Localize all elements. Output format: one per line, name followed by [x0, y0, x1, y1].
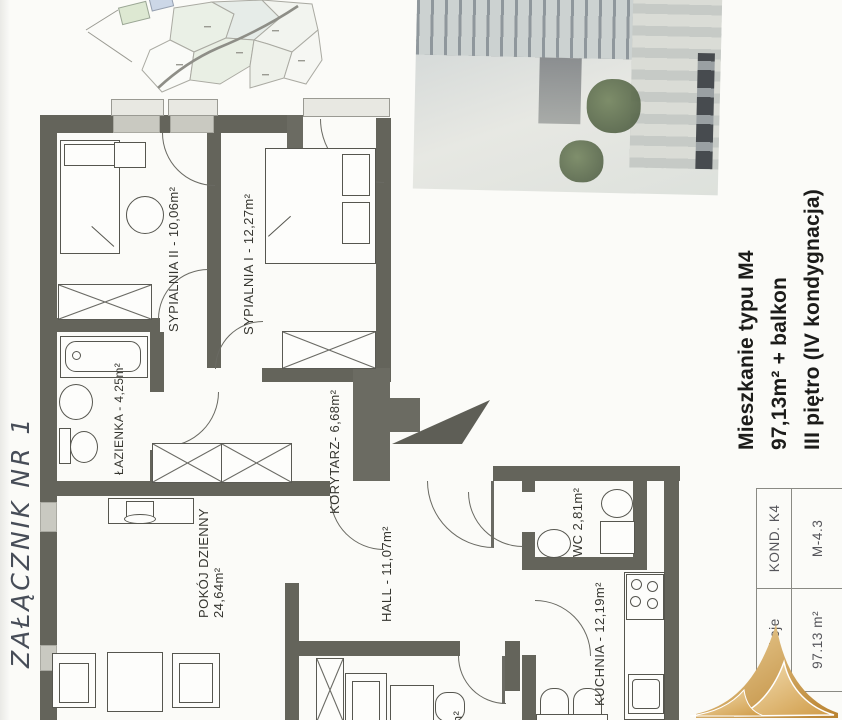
- wall: [40, 481, 330, 496]
- wall: [522, 481, 535, 492]
- sofa-seat: [352, 681, 380, 720]
- door-leaf: [502, 656, 505, 704]
- wardrobe: [152, 443, 223, 483]
- room-label-wc: WC 2,81m²: [570, 488, 585, 557]
- wall: [664, 466, 679, 720]
- wall: [40, 115, 57, 720]
- balcony-slab: [111, 99, 164, 116]
- wardrobe: [221, 443, 292, 483]
- wall: [160, 115, 170, 133]
- bathroom-sink: [59, 384, 93, 420]
- door-arc: [458, 656, 506, 704]
- apartment-area: 97,13m² + balkon: [768, 277, 791, 450]
- desk: [390, 685, 434, 720]
- wall: [285, 583, 299, 720]
- wall: [40, 115, 113, 133]
- pillow: [342, 154, 370, 196]
- wall: [214, 115, 287, 133]
- balcony-door-threshold: [170, 115, 214, 133]
- wall: [522, 557, 647, 570]
- room-label-sypialnia-2: SYPIALNIA II - 10,06m²: [166, 187, 181, 332]
- room-label-pokoj-dzienny: POKÓJ DZIENNY 24,64m²: [196, 508, 226, 618]
- window: [113, 115, 160, 133]
- location-map: [66, 0, 324, 94]
- handwritten-annotation: ZAŁĄCZNIK NR 1: [6, 416, 35, 668]
- scanned-floor-plan-page: ZAŁĄCZNIK NR 1: [0, 0, 842, 720]
- room-label-pokoj-3: 16m²: [450, 711, 465, 720]
- coffee-table: [107, 652, 163, 712]
- pillow: [342, 202, 370, 244]
- door-arc: [164, 392, 219, 447]
- tv-base: [124, 514, 156, 524]
- stove-burner: [647, 581, 658, 592]
- table-cell-unit: M-4.3: [792, 489, 842, 589]
- armchair-seat: [179, 663, 213, 703]
- toilet-tank: [600, 521, 635, 554]
- wall: [353, 368, 390, 481]
- table-cell-kond: KOND. K4: [757, 489, 792, 589]
- kitchen-table: [536, 714, 608, 720]
- pillow: [64, 144, 116, 166]
- wall: [522, 655, 536, 720]
- room-label-korytarz: KORYTARZ- 6,68m²: [327, 390, 342, 514]
- wc-sink: [537, 529, 571, 558]
- toilet: [601, 489, 633, 518]
- photo-tree: [559, 140, 604, 183]
- apartment-info-block: Mieszkanie typu M4 97,13m² + balkon III …: [730, 189, 829, 450]
- wardrobe: [58, 284, 152, 320]
- entrance-arrow: [390, 394, 495, 446]
- stove-burner: [631, 579, 642, 590]
- wall: [493, 466, 680, 481]
- wall: [299, 641, 460, 656]
- stove-burner: [630, 596, 641, 607]
- wardrobe: [316, 658, 344, 720]
- chair: [126, 196, 164, 234]
- bathtub-drain: [72, 351, 81, 360]
- room-label-hall: HALL - 11,07m²: [379, 526, 394, 622]
- door-arc: [535, 600, 591, 656]
- apartment-type: Mieszkanie typu M4: [735, 250, 758, 450]
- room-label-kuchnia: KUCHNIA - 12,19m²: [592, 582, 607, 706]
- photo-parked-cars: [695, 53, 715, 169]
- desk: [114, 142, 146, 168]
- photo-entrance-block: [538, 57, 581, 124]
- armchair-seat: [59, 663, 89, 703]
- kitchen-sink-basin: [632, 679, 660, 709]
- room-label-lazienka: ŁAZIENKA - 4,25m²: [112, 363, 126, 475]
- wall: [150, 332, 164, 392]
- wardrobe: [282, 331, 376, 369]
- window: [40, 502, 57, 532]
- toilet: [70, 431, 98, 463]
- room-label-sypialnia-1: SYPIALNIA I - 12,27m²: [241, 194, 256, 335]
- wall: [633, 470, 647, 570]
- balcony-slab: [303, 98, 390, 117]
- door-arc: [162, 133, 215, 186]
- balcony-slab: [168, 99, 218, 116]
- room-label-line: POKÓJ DZIENNY: [196, 508, 211, 618]
- stove-burner: [647, 598, 658, 609]
- wall: [57, 318, 160, 332]
- wall: [505, 641, 520, 691]
- room-area-line: 24,64m²: [211, 568, 226, 619]
- photo-tree: [586, 78, 641, 133]
- developer-logo: [688, 618, 842, 720]
- building-photo: [413, 0, 722, 195]
- apartment-floor: III piętro (IV kondygnacja): [801, 189, 824, 450]
